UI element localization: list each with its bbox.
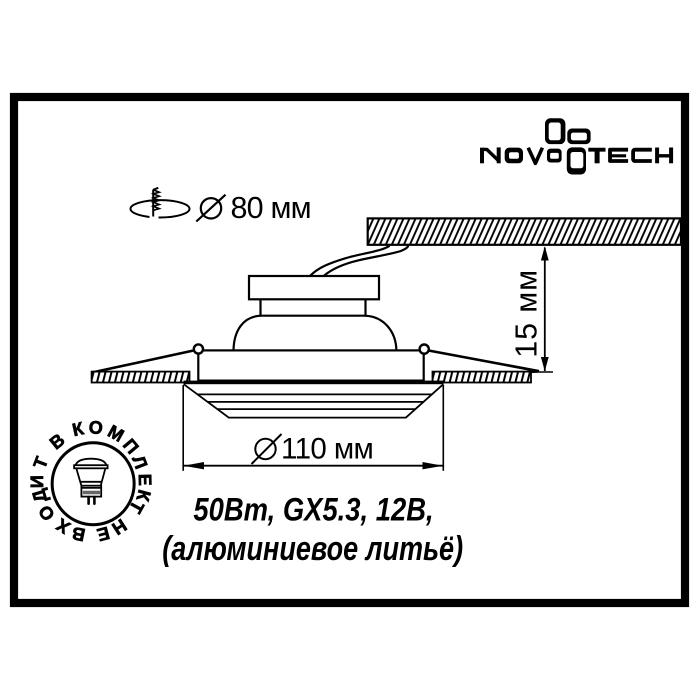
svg-text:15 мм: 15 мм	[510, 269, 544, 358]
svg-text:Е: Е	[135, 474, 155, 486]
svg-text:80 мм: 80 мм	[231, 191, 311, 225]
svg-text:О: О	[88, 417, 104, 439]
svg-text:110 мм: 110 мм	[281, 433, 373, 466]
svg-text:50Вт, GX5.3, 12В,: 50Вт, GX5.3, 12В,	[193, 492, 433, 528]
svg-text:И: И	[27, 475, 47, 488]
svg-text:(алюминиевое литьё): (алюминиевое литьё)	[162, 529, 463, 568]
